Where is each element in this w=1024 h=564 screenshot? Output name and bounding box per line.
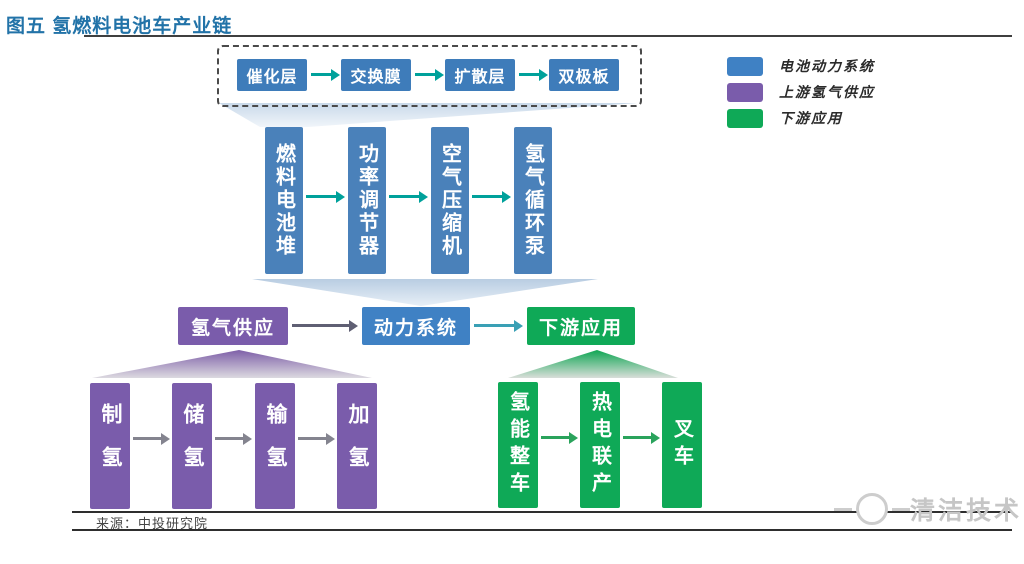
figure-hydrogen-fuel-cell-industry-chain: 图五 氢燃料电池车产业链 电池动力系统 (0, 0, 1024, 564)
arrow-right-icon (541, 436, 569, 439)
legend-item-upstream-supply: 上游氢气供应 (727, 79, 875, 105)
source-note: 来源：中投研究院 (96, 513, 208, 532)
node-diffusion-layer: 扩散层 (445, 59, 515, 91)
node-hydrogen-circulation-pump: 氢气循环泵 (514, 127, 552, 274)
arrow-right-icon (389, 195, 419, 198)
watermark: 清洁技术 (834, 491, 1022, 527)
membrane-electrode-dashed-group: 催化层 交换膜 扩散层 双极板 (217, 45, 642, 107)
node-power-system: 动力系统 (362, 307, 470, 345)
figure-title: 图五 氢燃料电池车产业链 (6, 11, 232, 38)
arrow-right-icon (306, 195, 336, 198)
node-hydrogen-refueling: 加氢 (337, 383, 377, 509)
arrow-right-icon (215, 437, 243, 440)
node-bipolar-plate: 双极板 (549, 59, 619, 91)
node-hydrogen-supply: 氢气供应 (178, 307, 288, 345)
arrow-right-icon (292, 324, 349, 327)
arrow-right-icon (519, 73, 539, 76)
arrow-right-icon (474, 324, 514, 327)
arrow-right-icon (472, 195, 502, 198)
node-downstream-application: 下游应用 (527, 307, 635, 345)
funnel-supply-to-hydrogen-supply (92, 350, 372, 378)
node-hydrogen-transport: 输氢 (255, 383, 295, 509)
watermark-text: 清洁技术 (910, 491, 1022, 527)
node-hydrogen-production: 制氢 (90, 383, 130, 509)
legend-swatch-purple (727, 83, 763, 102)
node-air-compressor: 空气压缩机 (431, 127, 469, 274)
arrow-right-icon (298, 437, 326, 440)
arrow-right-icon (623, 436, 651, 439)
legend-item-power-system: 电池动力系统 (727, 53, 875, 79)
node-forklift: 叉车 (662, 382, 702, 508)
node-catalyst-layer: 催化层 (237, 59, 307, 91)
legend-label: 电池动力系统 (779, 56, 875, 76)
legend: 电池动力系统 上游氢气供应 下游应用 (727, 53, 875, 131)
watermark-dash (834, 508, 852, 511)
node-fuel-cell-stack: 燃料电池堆 (265, 127, 303, 274)
funnel-downstream-to-application (508, 350, 678, 378)
node-hydrogen-vehicle: 氢能整车 (498, 382, 538, 508)
arrow-right-icon (133, 437, 161, 440)
arrow-right-icon (415, 73, 435, 76)
legend-label: 下游应用 (779, 108, 843, 128)
legend-item-downstream-application: 下游应用 (727, 105, 875, 131)
arrow-right-icon (311, 73, 331, 76)
title-underline (84, 35, 1012, 37)
legend-swatch-green (727, 109, 763, 128)
funnel-components-to-power-system (252, 279, 598, 306)
node-power-regulator: 功率调节器 (348, 127, 386, 274)
node-hydrogen-storage: 储氢 (172, 383, 212, 509)
watermark-dash (892, 508, 910, 511)
footer-rule-bottom (72, 529, 1012, 531)
node-exchange-membrane: 交换膜 (341, 59, 411, 91)
watermark-logo-icon (856, 493, 888, 525)
legend-label: 上游氢气供应 (779, 82, 875, 102)
legend-swatch-blue (727, 57, 763, 76)
node-combined-heat-power: 热电联产 (580, 382, 620, 508)
